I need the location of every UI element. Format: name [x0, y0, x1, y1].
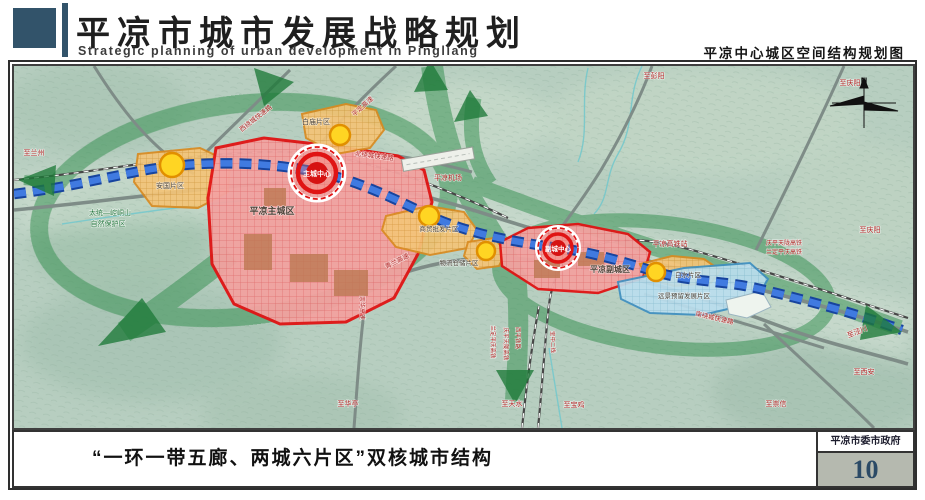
label-sub-center: 副城中心 — [545, 244, 572, 253]
node-baimiao — [330, 125, 350, 145]
label-zone-anguo: 安国片区 — [156, 181, 184, 190]
label-to-lanzhou: 至兰州 — [24, 148, 45, 157]
label-hsr-line-1: 庆平天陇高铁 — [766, 239, 802, 247]
page-subtitle: Strategic planning of urban development … — [78, 44, 479, 58]
label-to-qingyang-right: 至庆阳 — [860, 225, 881, 234]
label-to-pengyang: 至彭阳 — [644, 71, 665, 80]
map-title: 平凉中心城区空间结构规划图 — [704, 42, 906, 62]
label-hsr-station: 平凉高铁站 — [653, 239, 688, 248]
authority-label: 平凉市委市政府 — [818, 432, 913, 451]
label-to-tianshui: 至天水 — [502, 399, 523, 408]
label-rail-landingpingqing: 兰定平庆高铁 — [489, 325, 497, 359]
label-zone-baimiao: 白庙片区 — [302, 117, 330, 126]
label-main-center: 主城中心 — [303, 169, 331, 178]
label-compass-n: N — [861, 76, 868, 86]
label-zone-baishui: 白水片区 — [675, 270, 702, 279]
label-zone-reserve: 远景预留发展片区 — [658, 291, 711, 300]
label-to-xian: 至西安 — [854, 367, 875, 376]
node-baishui — [647, 263, 665, 281]
footer: “一环一带五廊、两城六片区”双核城市结构 平凉市委市政府 10 — [12, 430, 915, 488]
node-shangmao — [419, 206, 439, 226]
structure-caption: “一环一带五廊、两城六片区”双核城市结构 — [92, 432, 493, 486]
label-nature-reserve-2: 自然保护区 — [91, 219, 126, 228]
label-chonghua-expressway: 崇华高速 — [358, 296, 366, 320]
map-area: 安国片区平凉主城区主城中心白庙片区商贸批发片区物流仓储片区平凉副城区副城中心白水… — [12, 64, 915, 430]
planning-map: 安国片区平凉主城区主城中心白庙片区商贸批发片区物流仓储片区平凉副城区副城中心白水… — [14, 66, 913, 428]
label-to-qingyang-top: 至庆阳 — [840, 78, 861, 87]
label-nature-reserve-1: 太统—崆峒山 — [89, 208, 131, 217]
label-zone-wuliu: 物流仓储片区 — [440, 258, 480, 267]
label-zone-shangmao: 商贸批发片区 — [420, 224, 460, 233]
label-rail-qingpingtianlong: 庆平天陇高铁 — [502, 327, 510, 361]
label-rail-xiping: 西平铁路 — [514, 327, 522, 350]
label-to-baoji: 至宝鸡 — [564, 400, 585, 409]
authority-box: 平凉市委市政府 10 — [816, 432, 913, 486]
label-to-huating: 至华亭 — [338, 399, 359, 408]
label-airport: 平凉机场 — [434, 173, 462, 182]
header-accent-bar — [62, 3, 68, 57]
page-number: 10 — [818, 451, 913, 486]
label-to-chongxin: 至崇信 — [766, 399, 787, 408]
node-anguo — [160, 153, 184, 177]
header-accent-square — [13, 8, 56, 48]
label-hsr-line-2: 兰定平庆高铁 — [766, 248, 802, 256]
label-zone-main-city: 平凉主城区 — [249, 205, 294, 216]
node-wuliu — [477, 242, 495, 260]
label-zone-subcity: 平凉副城区 — [590, 264, 630, 274]
